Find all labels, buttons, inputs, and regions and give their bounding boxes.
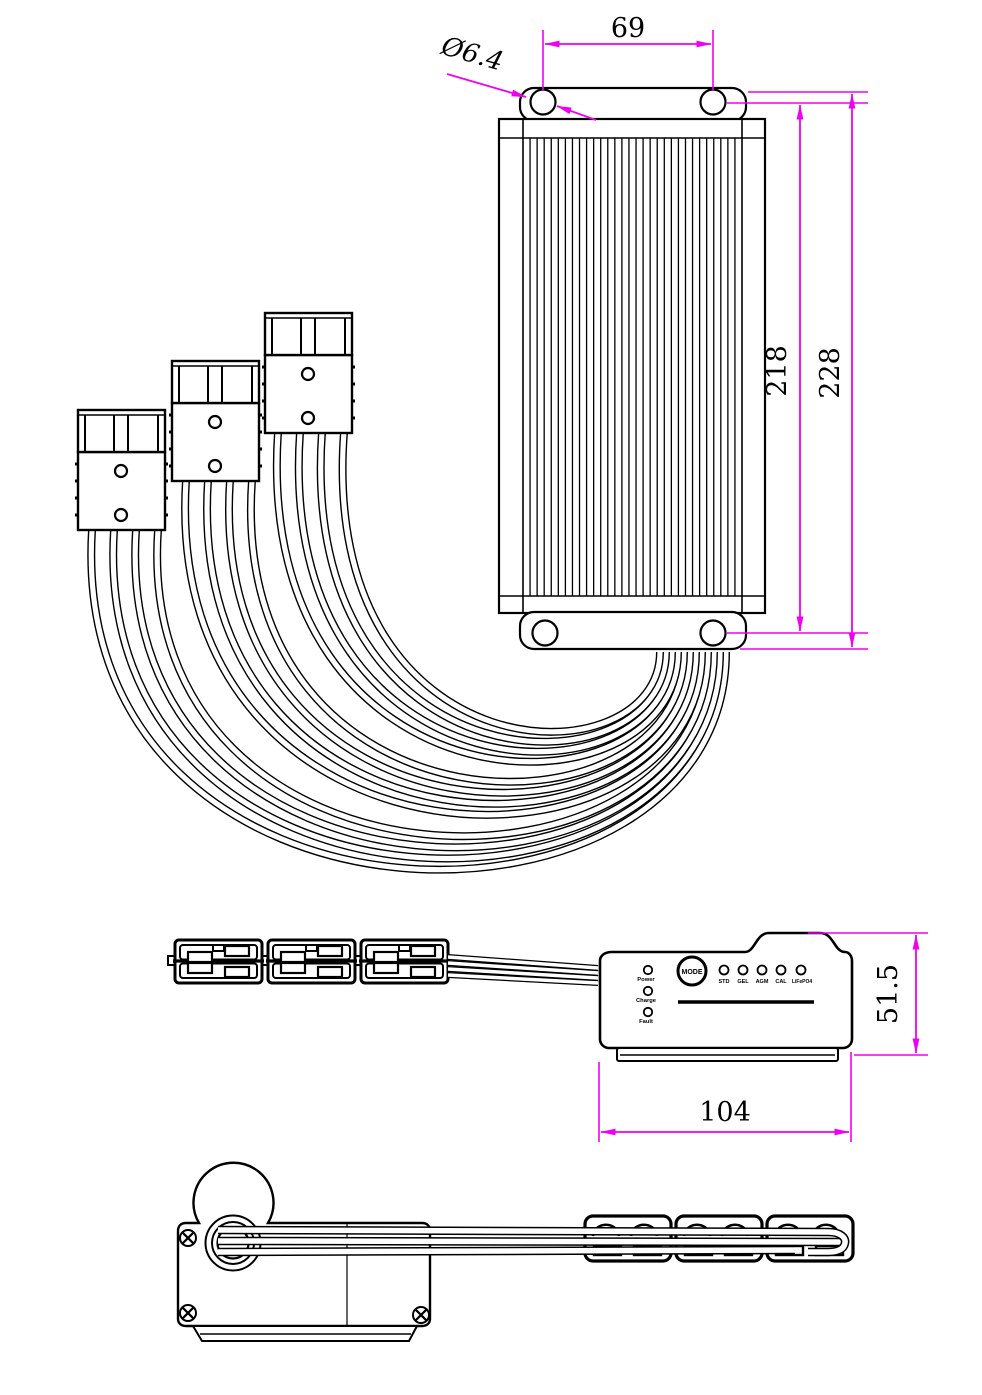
controller-front-panel: Power Charge Fault MODE STD GEL AGM CAL …: [600, 933, 852, 1061]
lifepo4-led: [797, 966, 806, 975]
agm-led-label: AGM: [756, 979, 769, 985]
charge-led-label: Charge: [636, 998, 657, 1004]
battery-connectors-front: [75, 313, 355, 530]
cable-bundle-side: [218, 1230, 845, 1252]
terminal-slot: [318, 967, 342, 977]
charge-led: [644, 987, 652, 995]
dim-text-228: 228: [815, 347, 846, 399]
connector-contact-strip: [172, 361, 259, 403]
mode-button-label: MODE: [682, 969, 703, 976]
lifepo4-led-label: LiFePO4: [792, 979, 813, 985]
std-led-label: STD: [719, 979, 730, 985]
battery-connector-front: [262, 313, 355, 433]
cal-led: [777, 966, 786, 975]
cable-core: [218, 1241, 843, 1242]
power-led: [644, 966, 652, 974]
mounting-hole: [701, 90, 726, 115]
latch-notch: [213, 945, 224, 951]
fault-led: [644, 1008, 652, 1016]
technical-drawing-page: Power Charge Fault MODE STD GEL AGM CAL …: [0, 0, 982, 1395]
dim-text-hole-diameter: Ø6.4: [437, 31, 506, 77]
power-led-label: Power: [637, 977, 655, 983]
latch-notch: [399, 945, 410, 951]
terminal-slot: [225, 967, 249, 977]
charger-engineering-drawing: Power Charge Fault MODE STD GEL AGM CAL …: [0, 0, 982, 1395]
terminal-slot: [281, 952, 305, 962]
connectors-top-view: [168, 940, 455, 983]
middle-wire-bundle: [448, 957, 598, 983]
mounting-hole: [533, 621, 558, 646]
fault-led-label: Fault: [639, 1019, 653, 1025]
connector-pin-hole: [209, 416, 221, 428]
gel-led-label: GEL: [737, 979, 749, 985]
dim-text-51-5: 51.5: [873, 964, 904, 1024]
terminal-slot: [374, 952, 398, 962]
connector-pin-hole: [302, 368, 314, 380]
terminal-slot: [188, 952, 212, 962]
terminal-slot: [318, 946, 342, 956]
battery-connector-front: [75, 410, 168, 530]
dim-text-69: 69: [611, 13, 645, 44]
dim-text-218: 218: [762, 345, 793, 397]
terminal-slot: [411, 967, 435, 977]
connector-pin-hole: [302, 412, 314, 424]
controller-housing: [600, 933, 852, 1048]
terminal-slot: [374, 963, 398, 973]
dim-text-104: 104: [699, 1097, 751, 1128]
connector-top-view: [359, 940, 455, 983]
connector-top-view: [168, 940, 269, 983]
terminal-slot: [188, 963, 212, 973]
mounting-hole: [531, 90, 556, 115]
connector-pin-hole: [115, 465, 127, 477]
connector-contact-strip: [265, 313, 352, 355]
terminal-slot: [411, 946, 435, 956]
cal-led-label: CAL: [775, 979, 787, 985]
std-led: [720, 966, 729, 975]
leader-line: [447, 74, 526, 97]
gel-led: [739, 966, 748, 975]
terminal-slot: [225, 946, 249, 956]
agm-led: [758, 966, 767, 975]
battery-connector-front: [169, 361, 262, 481]
heatsink-body: [499, 119, 765, 613]
cable-core: [218, 1250, 795, 1252]
connector-pin-hole: [115, 509, 127, 521]
terminal-slot: [281, 963, 305, 973]
latch-notch: [306, 945, 317, 951]
connector-top-view: [266, 940, 362, 983]
heatsink-top-view: [499, 88, 765, 649]
connector-pin-hole: [209, 460, 221, 472]
mounting-hole: [701, 621, 726, 646]
connector-contact-strip: [78, 410, 165, 452]
